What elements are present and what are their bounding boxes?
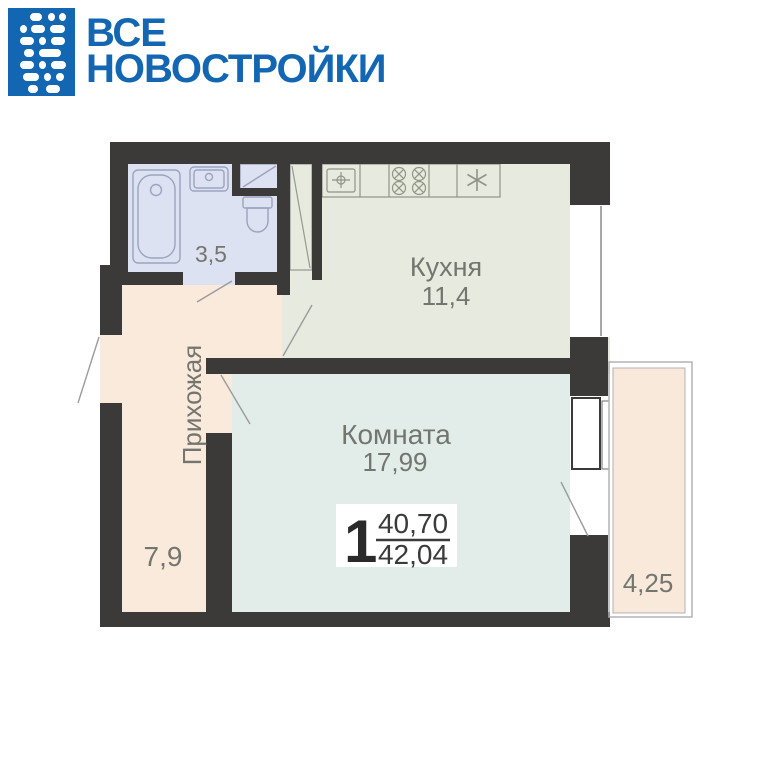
hallway-name-label: Прихожая (177, 345, 207, 465)
kitchen-name-label: Кухня (410, 252, 482, 282)
logo: ВСЕ НОВОСТРОЙКИ (8, 8, 386, 96)
bathroom-area-label: 3,5 (195, 241, 227, 267)
kitchen-window (570, 205, 610, 337)
logo-text-line2: НОВОСТРОЙКИ (86, 45, 386, 91)
area-badge: 1 40,70 42,04 (336, 504, 457, 575)
hallway-area-label: 7,9 (144, 541, 183, 572)
floorplan-page: ВСЕ НОВОСТРОЙКИ (0, 0, 768, 768)
room-area-label: 17,99 (362, 447, 427, 477)
room-floor (232, 374, 570, 612)
floor-plan-svg: ВСЕ НОВОСТРОЙКИ (0, 0, 768, 768)
living-area-value: 40,70 (378, 508, 448, 539)
kitchen-area-label: 11,4 (422, 281, 471, 311)
rooms-count: 1 (344, 508, 377, 575)
balcony-area-label: 4,25 (623, 568, 674, 598)
balcony-door (570, 396, 610, 535)
total-area-value: 42,04 (378, 539, 448, 570)
room-name-label: Комната (341, 419, 451, 450)
entrance-door-swing (78, 337, 99, 403)
